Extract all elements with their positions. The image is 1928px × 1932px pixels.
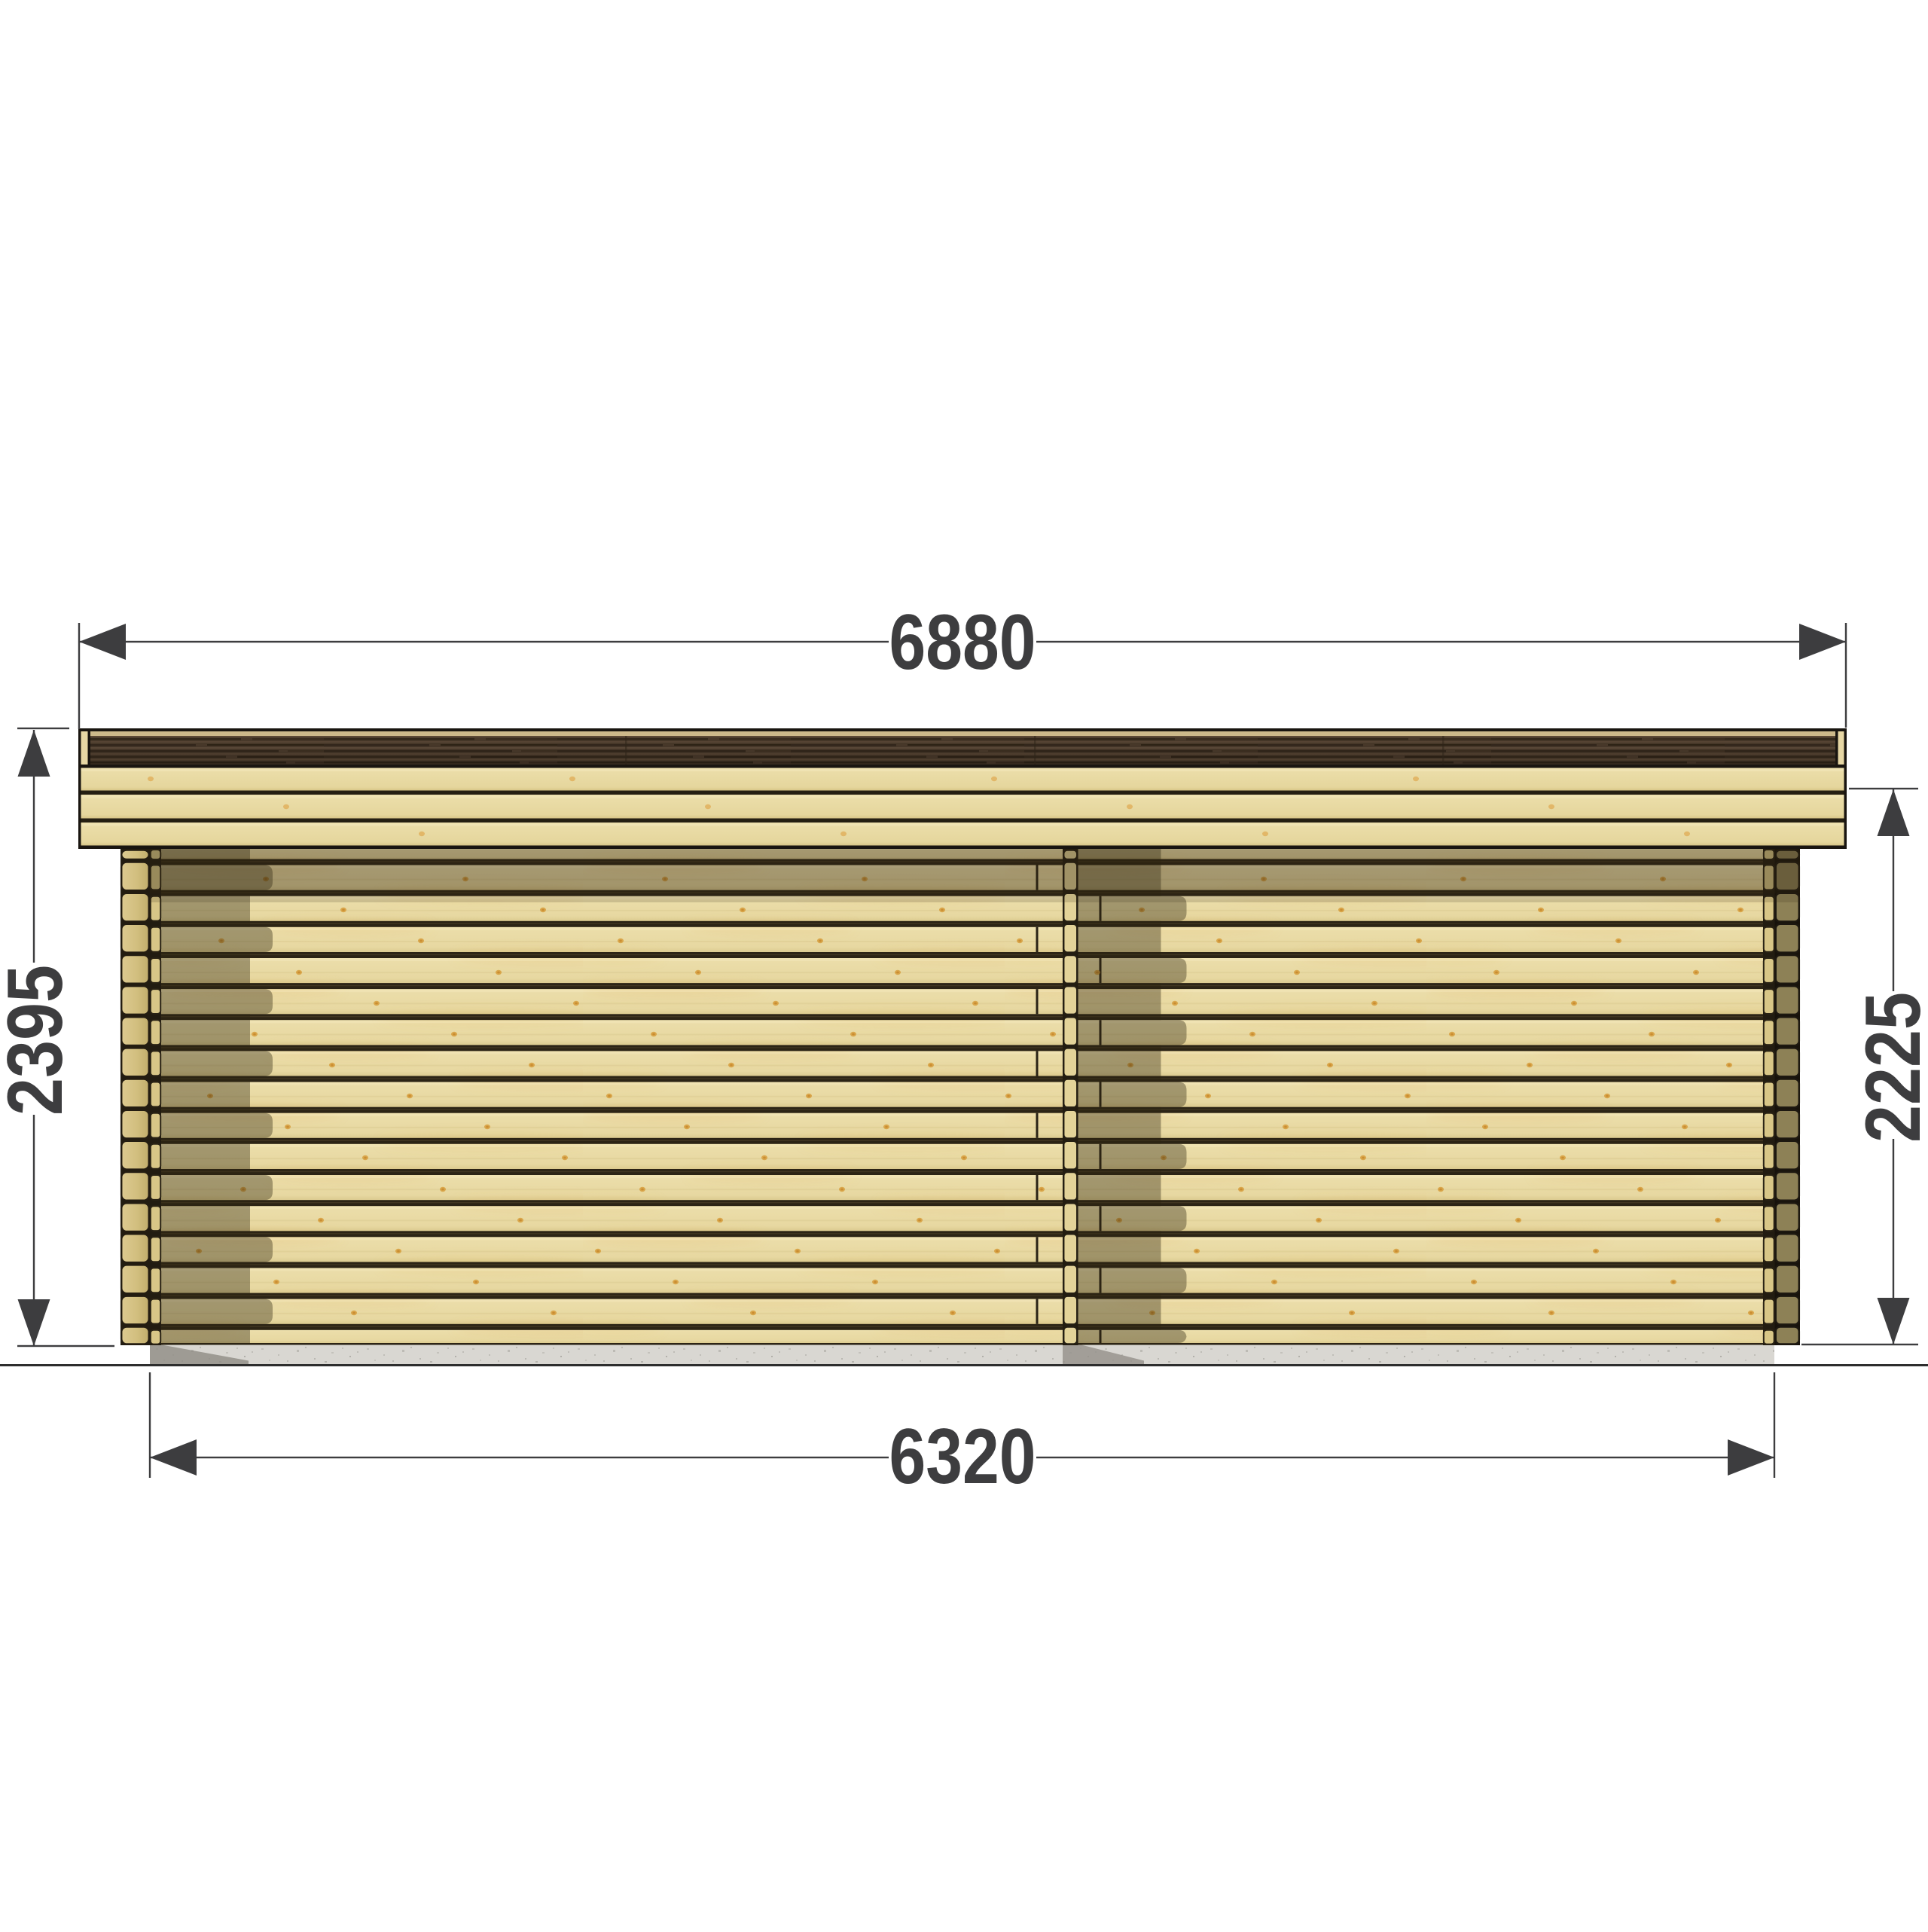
svg-text:2225: 2225	[1850, 992, 1928, 1143]
svg-text:6880: 6880	[889, 599, 1036, 686]
svg-text:2395: 2395	[0, 965, 79, 1116]
svg-text:6320: 6320	[889, 1413, 1036, 1500]
